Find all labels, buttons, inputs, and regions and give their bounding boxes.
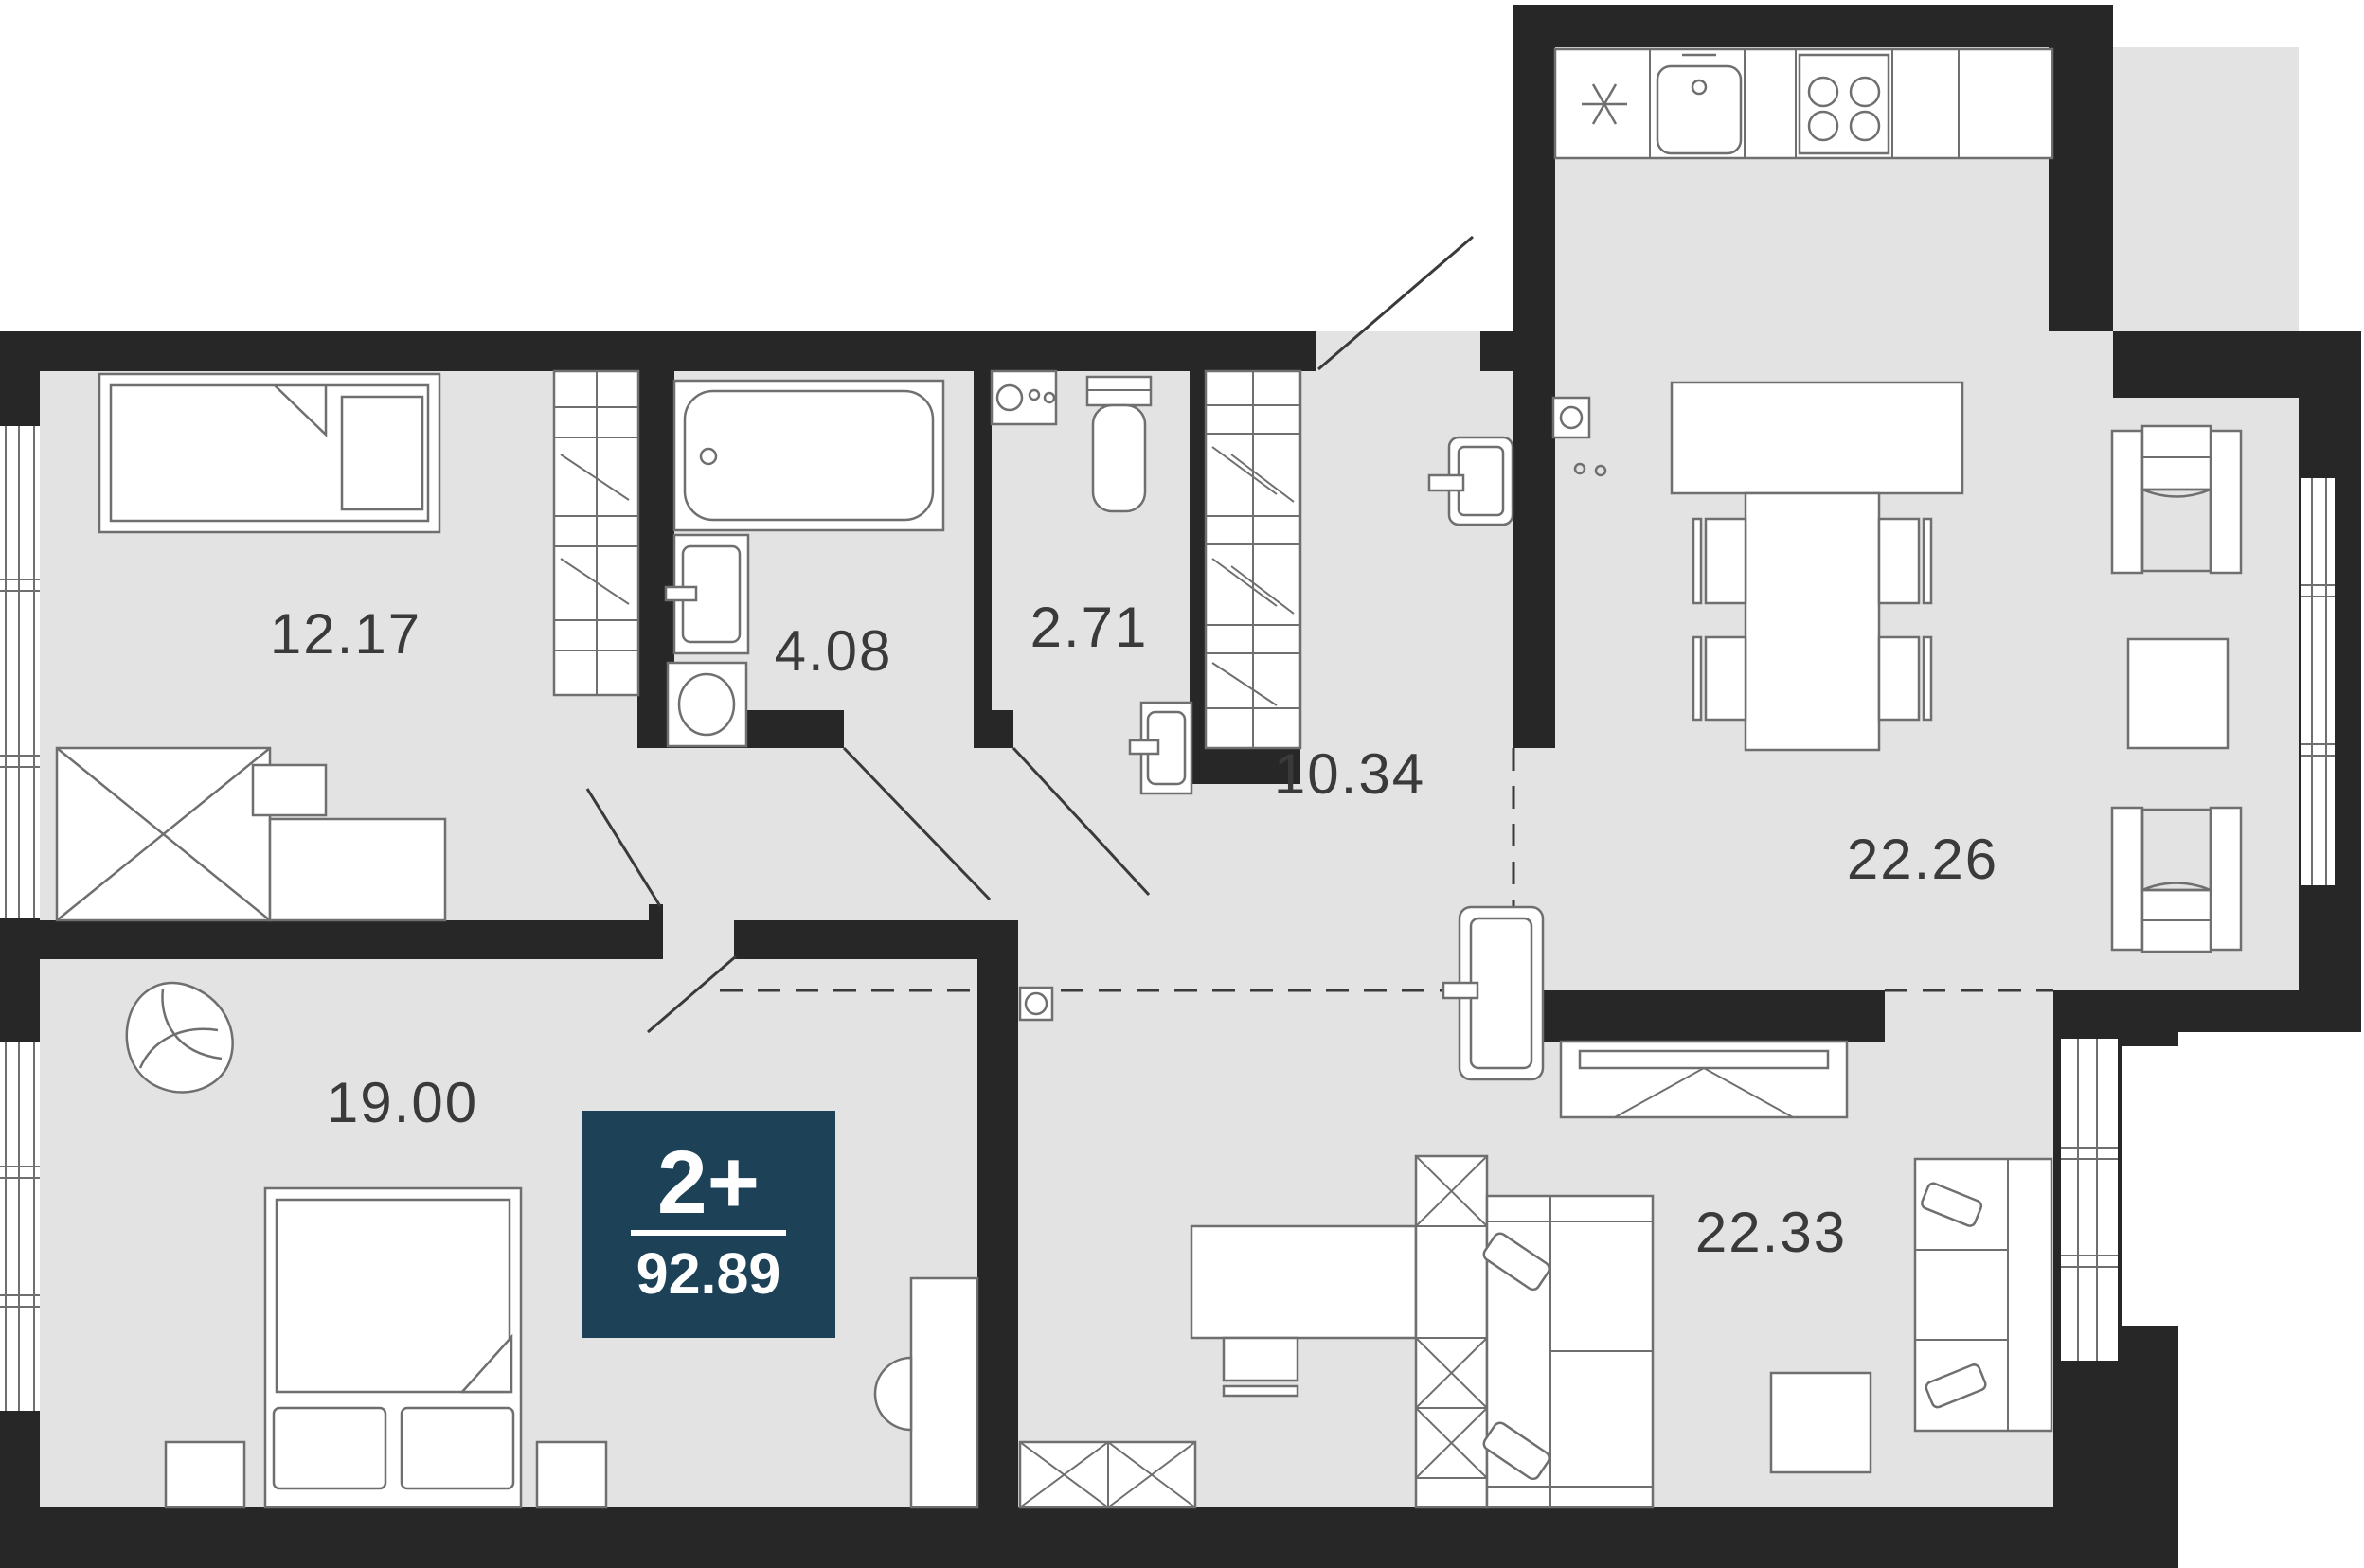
badge-divider bbox=[631, 1230, 786, 1236]
bath-sink-icon bbox=[666, 535, 748, 653]
bathtub-icon bbox=[674, 381, 943, 530]
room-label-bathroom: 4.08 bbox=[775, 619, 893, 683]
washing-machine-icon bbox=[668, 663, 746, 746]
room-label-living-room: 22.33 bbox=[1695, 1201, 1847, 1264]
sofa-main-icon bbox=[1481, 1196, 1653, 1507]
stove-icon bbox=[1800, 55, 1889, 153]
work-desk-chair-icon bbox=[1224, 1338, 1298, 1396]
window-kitchen bbox=[2301, 478, 2335, 885]
window-bedroom-main bbox=[0, 1042, 40, 1411]
window-living bbox=[2061, 1039, 2118, 1361]
nightstand-left-icon bbox=[166, 1442, 244, 1507]
dining-table-icon bbox=[1746, 493, 1879, 750]
unit-badge: 2+ 92.89 bbox=[582, 1111, 835, 1338]
kitchen-island-icon bbox=[1672, 383, 1962, 493]
x-cabinet-icon bbox=[1020, 1442, 1195, 1507]
coffee-table-icon bbox=[1771, 1373, 1871, 1472]
desk-cabinet-icon bbox=[57, 748, 270, 920]
side-table-icon bbox=[2128, 639, 2228, 748]
room-label-toilet: 2.71 bbox=[1030, 596, 1149, 659]
wardrobe-bedroom-top-icon bbox=[554, 371, 638, 695]
room-label-kitchen-living: 22.26 bbox=[1847, 828, 1998, 891]
shelving-unit-icon bbox=[1416, 1156, 1487, 1507]
tv-console-icon bbox=[1561, 1042, 1847, 1117]
floor-plan-canvas: 12.17 4.08 2.71 10.34 22.26 19.00 22.33 … bbox=[0, 0, 2364, 1568]
work-desk-icon bbox=[1191, 1226, 1416, 1338]
door-leaf-living-icon bbox=[1443, 907, 1543, 1079]
unit-rooms-label: 2+ bbox=[657, 1132, 760, 1233]
kitchen-sink-icon bbox=[1657, 55, 1741, 153]
double-bed-icon bbox=[265, 1188, 521, 1507]
nightstand-right-icon bbox=[537, 1442, 606, 1507]
room-label-bedroom-main: 19.00 bbox=[327, 1071, 478, 1134]
room-label-bedroom-top: 12.17 bbox=[270, 602, 421, 666]
floor-plan: 12.17 4.08 2.71 10.34 22.26 19.00 22.33 … bbox=[0, 0, 2364, 1568]
hall-wardrobe-icon bbox=[1206, 371, 1300, 748]
sofa-right-icon bbox=[1915, 1159, 2051, 1431]
window-bedroom-top bbox=[0, 426, 40, 918]
dryer-icon bbox=[992, 371, 1056, 424]
desk-icon bbox=[270, 819, 445, 920]
desk-chair-icon bbox=[253, 765, 326, 815]
single-bed-icon bbox=[99, 374, 439, 532]
unit-total-area: 92.89 bbox=[636, 1241, 781, 1306]
vent-box-hall-icon bbox=[1020, 988, 1052, 1020]
room-label-hallway: 10.34 bbox=[1274, 742, 1425, 806]
toilet-icon bbox=[1087, 377, 1151, 511]
